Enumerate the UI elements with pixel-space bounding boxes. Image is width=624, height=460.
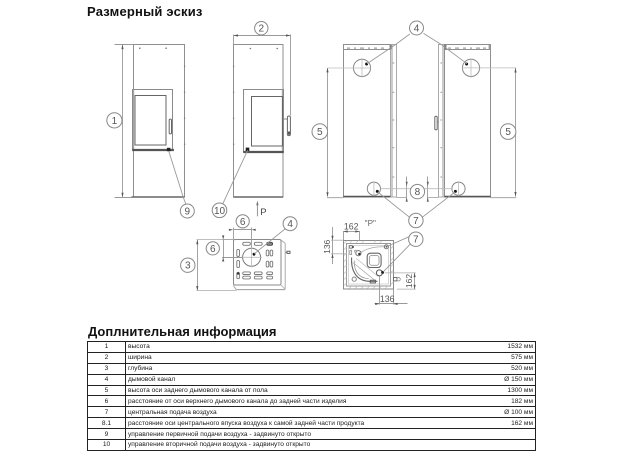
svg-text:5: 5 bbox=[505, 127, 511, 138]
svg-text:3: 3 bbox=[185, 261, 191, 272]
svg-text:1: 1 bbox=[112, 116, 118, 127]
svg-text:2: 2 bbox=[259, 24, 265, 35]
svg-text:"Р": "Р" bbox=[365, 219, 376, 228]
svg-text:8: 8 bbox=[415, 187, 421, 198]
svg-text:6: 6 bbox=[210, 244, 216, 255]
svg-text:4: 4 bbox=[287, 219, 293, 230]
svg-text:7: 7 bbox=[413, 235, 419, 246]
svg-text:136: 136 bbox=[380, 294, 395, 304]
svg-text:6: 6 bbox=[240, 217, 246, 228]
svg-text:162: 162 bbox=[404, 274, 414, 288]
svg-text:7: 7 bbox=[413, 216, 419, 227]
svg-text:10: 10 bbox=[214, 206, 226, 217]
svg-text:162: 162 bbox=[344, 222, 359, 232]
svg-text:5: 5 bbox=[317, 127, 323, 138]
svg-text:4: 4 bbox=[414, 24, 420, 35]
svg-text:9: 9 bbox=[185, 207, 191, 218]
svg-text:136: 136 bbox=[322, 239, 332, 253]
svg-text:Р: Р bbox=[260, 207, 266, 218]
